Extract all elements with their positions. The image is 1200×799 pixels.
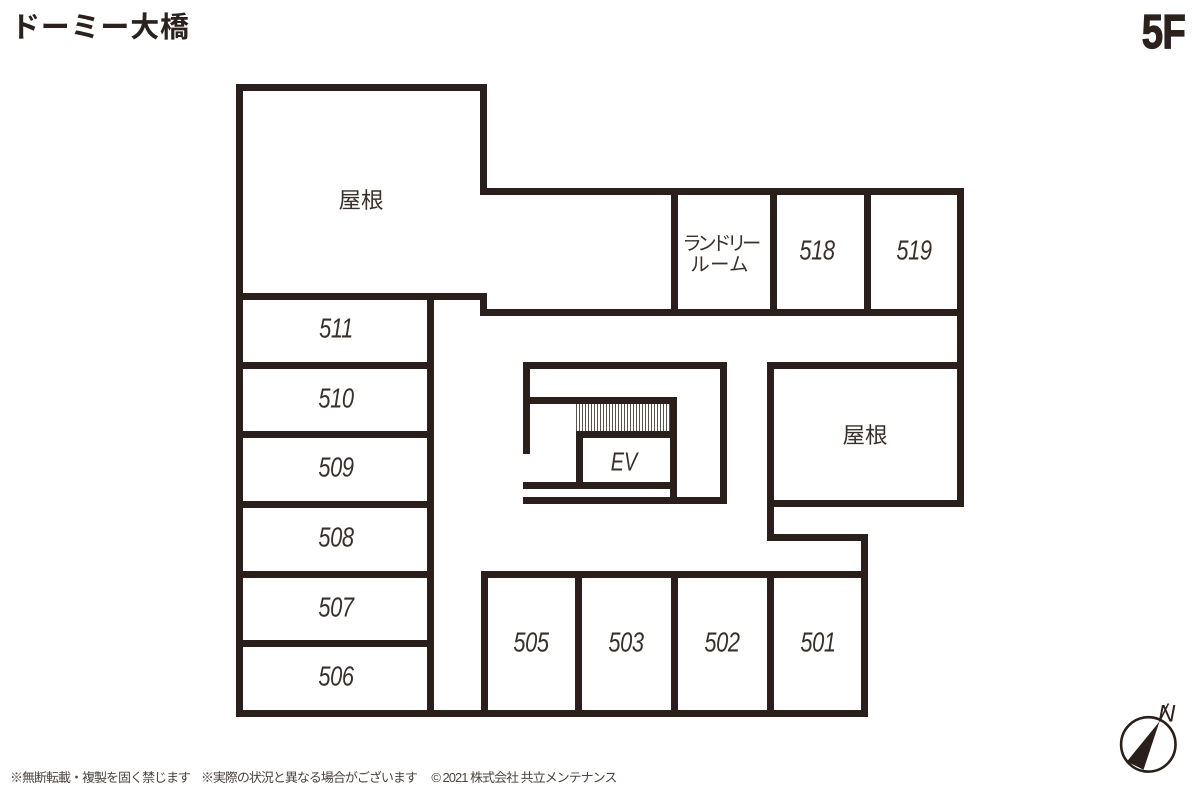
svg-text:N: N [1158, 701, 1176, 728]
